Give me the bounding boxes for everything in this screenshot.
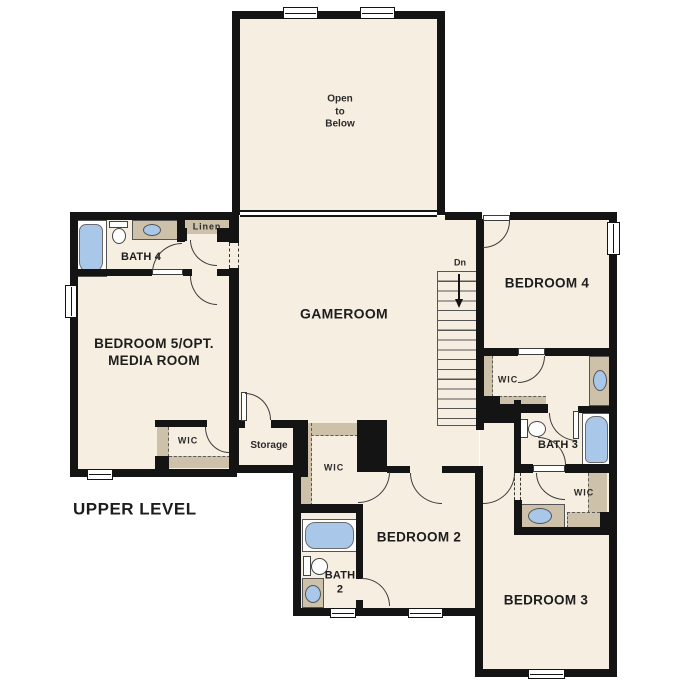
wall: [293, 608, 477, 616]
railing: [240, 210, 437, 217]
wall: [476, 219, 484, 430]
bath2-label: BATH 2: [325, 569, 356, 597]
wall: [232, 11, 445, 19]
wall: [387, 466, 410, 473]
cased-opening: [229, 243, 239, 268]
wall: [356, 513, 363, 579]
wall: [476, 348, 518, 356]
wall: [437, 11, 445, 215]
door-leaf: [518, 348, 545, 355]
wall: [232, 11, 240, 215]
wall: [609, 212, 617, 677]
storage-label: Storage: [250, 440, 287, 453]
bedroom4-label: BEDROOM 4: [505, 276, 589, 293]
wic-bedroom5-label: WIC: [178, 435, 198, 446]
floor-plan: Open to Below GAMEROOM BEDROOM 4 BEDROOM…: [0, 0, 687, 687]
down-arrow-icon: [455, 299, 463, 308]
toilet-bowl-icon: [528, 421, 546, 437]
sink-icon: [593, 370, 607, 391]
sink-icon: [528, 508, 552, 524]
wic-bedroom4-label: WIC: [498, 374, 518, 385]
window: [360, 7, 395, 19]
wall: [293, 504, 363, 513]
wall: [357, 420, 387, 472]
wall: [514, 527, 613, 535]
wic-bedroom5-shelf-bottom: [169, 456, 235, 468]
wall: [510, 212, 617, 220]
wall: [229, 268, 239, 469]
bathtub-icon: [585, 416, 608, 463]
wall: [442, 466, 483, 473]
wall: [217, 269, 238, 276]
window: [87, 469, 113, 480]
wall: [475, 473, 483, 677]
bathtub-icon: [79, 224, 103, 273]
door-leaf: [533, 465, 565, 472]
wall: [70, 212, 78, 477]
wic-bedroom3-shelf-bottom: [567, 512, 600, 528]
wall: [578, 406, 611, 413]
toilet-bowl-icon: [112, 228, 126, 244]
window: [408, 608, 443, 618]
staircase: [437, 271, 477, 426]
wall: [565, 464, 611, 473]
wic-bedroom3-label: WIC: [574, 487, 594, 498]
bathtub-icon: [305, 522, 354, 549]
wic-bedroom2-label: WIC: [324, 462, 344, 473]
stairs-down-label: Dn: [454, 257, 466, 268]
window: [65, 285, 77, 318]
down-arrow-line: [458, 274, 460, 300]
toilet-icon: [109, 221, 128, 228]
wall: [178, 228, 187, 241]
wall: [514, 400, 521, 473]
window: [607, 222, 620, 255]
cased-opening: [514, 473, 521, 500]
wic-bedroom4-shelf-left: [484, 351, 493, 397]
toilet-icon: [520, 419, 528, 438]
window: [330, 608, 356, 618]
wall: [155, 420, 207, 427]
wall: [238, 420, 245, 428]
wall: [514, 464, 533, 473]
sink-icon: [143, 224, 161, 236]
sink-icon: [305, 585, 321, 603]
wall: [600, 512, 613, 529]
bedroom3-label: BEDROOM 3: [504, 593, 588, 610]
wall: [183, 269, 192, 276]
gameroom-label: GAMEROOM: [300, 305, 388, 323]
linen-label: Linen: [193, 221, 222, 232]
bedroom5-label: BEDROOM 5/OPT. MEDIA ROOM: [94, 336, 214, 370]
window: [283, 7, 318, 19]
wall: [545, 348, 617, 356]
toilet-icon: [303, 556, 311, 576]
page-title: UPPER LEVEL: [73, 498, 197, 519]
wall: [293, 420, 301, 616]
open-to-below-label: Open to Below: [325, 93, 354, 131]
wall: [155, 456, 169, 469]
wic-bedroom5-shelf-left: [157, 427, 169, 457]
window: [528, 669, 565, 679]
wall: [70, 212, 236, 220]
wall: [70, 269, 152, 276]
bath4-label: BATH 4: [121, 251, 161, 265]
bedroom2-label: BEDROOM 2: [377, 530, 461, 547]
bath3-label: BATH 3: [538, 439, 578, 453]
